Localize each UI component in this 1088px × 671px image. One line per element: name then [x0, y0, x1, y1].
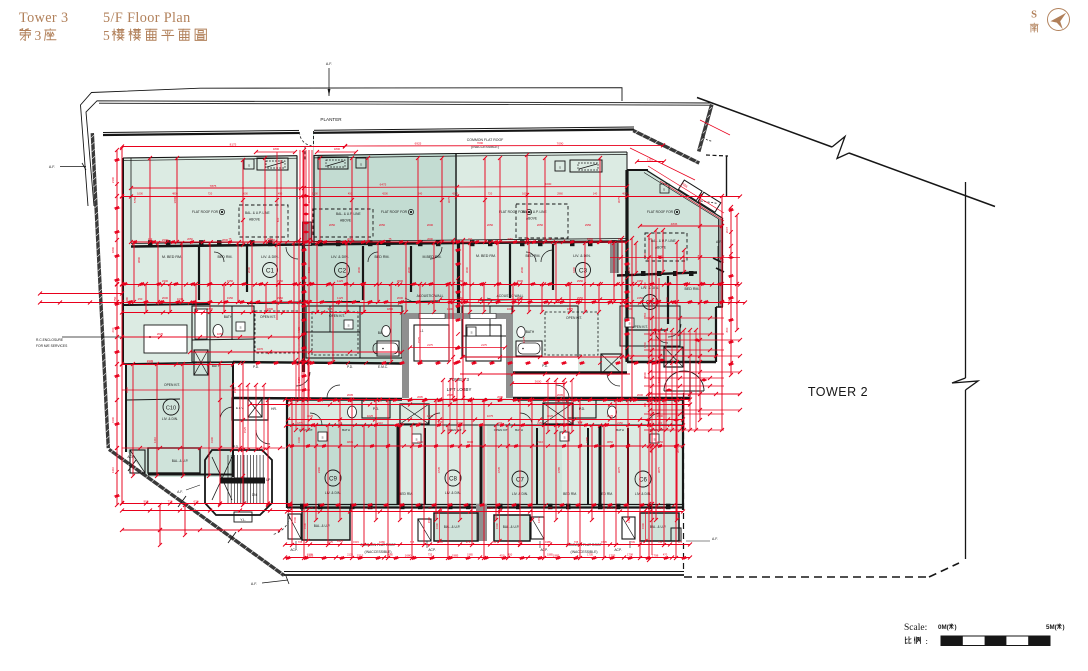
svg-text:3850: 3850: [607, 440, 614, 444]
svg-text:1875: 1875: [297, 421, 303, 425]
svg-text:2950: 2950: [577, 279, 584, 283]
svg-text:4100: 4100: [210, 436, 214, 443]
svg-text:5: 5: [103, 28, 110, 43]
svg-text:M. BED RM.: M. BED RM.: [476, 254, 496, 258]
svg-text:1675: 1675: [567, 307, 574, 311]
svg-text:1500: 1500: [641, 523, 645, 529]
svg-text:BAL. & U.P. LINE: BAL. & U.P. LINE: [336, 212, 361, 216]
svg-text:2950: 2950: [587, 237, 593, 241]
svg-text:2050: 2050: [507, 237, 513, 241]
svg-text:4400: 4400: [572, 266, 576, 273]
svg-text:1600: 1600: [312, 192, 318, 196]
svg-text:7090: 7090: [477, 141, 484, 145]
svg-text:600: 600: [111, 327, 115, 332]
svg-text:BAL. & U.P.: BAL. & U.P.: [172, 459, 189, 463]
svg-text:4735: 4735: [437, 466, 441, 473]
svg-text:960: 960: [643, 402, 647, 407]
svg-text:720: 720: [488, 192, 493, 196]
svg-text:3800: 3800: [137, 256, 141, 263]
svg-text:FLAT ROOF FOR: FLAT ROOF FOR: [381, 210, 408, 214]
svg-text:1575: 1575: [417, 336, 421, 343]
svg-text:BATH: BATH: [526, 330, 535, 334]
svg-text:650: 650: [643, 252, 647, 257]
svg-text:COMMON FLAT ROOF: COMMON FLAT ROOF: [467, 138, 504, 142]
svg-text:3675: 3675: [617, 466, 621, 473]
svg-text:2960: 2960: [557, 192, 563, 196]
svg-text:COMMON FLAT ROOF: COMMON FLAT ROOF: [566, 543, 601, 547]
svg-text:1050: 1050: [457, 279, 464, 283]
svg-text:BED RM.: BED RM.: [685, 287, 700, 291]
svg-text:2800: 2800: [222, 238, 229, 242]
svg-text:550: 550: [643, 312, 647, 317]
svg-text:2300: 2300: [162, 279, 169, 283]
svg-text:2400: 2400: [317, 466, 321, 473]
svg-text:425: 425: [518, 540, 523, 544]
svg-text:S: S: [663, 188, 665, 192]
svg-text:2000: 2000: [520, 266, 524, 273]
svg-text:LIV. & DIN.: LIV. & DIN.: [573, 254, 591, 258]
svg-text:L1: L1: [420, 329, 424, 333]
svg-text:1680: 1680: [379, 540, 385, 544]
svg-text:1985: 1985: [452, 553, 459, 557]
svg-text:BED RM.: BED RM.: [399, 492, 413, 496]
svg-text:2100: 2100: [111, 176, 115, 183]
svg-text:4735: 4735: [497, 466, 501, 473]
svg-text:2007: 2007: [725, 226, 729, 233]
svg-text:2450: 2450: [637, 279, 644, 283]
svg-text:150: 150: [618, 237, 623, 241]
svg-text:735: 735: [410, 540, 415, 544]
svg-text:BATH: BATH: [515, 428, 523, 432]
svg-text:3075: 3075: [617, 196, 621, 203]
svg-text:5100: 5100: [307, 266, 311, 273]
svg-text:1500: 1500: [293, 516, 297, 523]
svg-text:3800: 3800: [173, 196, 177, 203]
svg-text:3675: 3675: [447, 196, 451, 203]
svg-text:2600: 2600: [517, 296, 524, 300]
svg-text:4785: 4785: [585, 436, 589, 443]
svg-text:1050: 1050: [457, 296, 464, 300]
svg-text:1125: 1125: [337, 279, 343, 283]
svg-text:2300: 2300: [162, 238, 169, 242]
svg-text:2150: 2150: [607, 506, 614, 510]
svg-text:2050: 2050: [487, 223, 494, 227]
svg-text:BAL. & U.P.: BAL. & U.P.: [444, 525, 461, 529]
svg-text:1200: 1200: [643, 342, 647, 348]
svg-text:995: 995: [143, 499, 148, 503]
svg-text:2550: 2550: [267, 237, 273, 241]
svg-text:1472: 1472: [627, 516, 631, 523]
svg-text:450: 450: [508, 553, 513, 557]
svg-text:1125: 1125: [337, 296, 343, 300]
svg-text:2050: 2050: [379, 223, 386, 227]
svg-text:735: 735: [298, 540, 303, 544]
svg-text:1680: 1680: [387, 553, 393, 557]
svg-text:5M(: 5M(: [1046, 624, 1058, 631]
svg-text:1515: 1515: [353, 540, 359, 544]
svg-text:7875: 7875: [210, 184, 217, 188]
svg-text:4805: 4805: [172, 192, 178, 196]
svg-text:1985: 1985: [547, 553, 553, 557]
svg-text:P.D.: P.D.: [253, 365, 259, 369]
svg-text:735: 735: [167, 499, 172, 503]
svg-text:2695: 2695: [557, 393, 564, 397]
svg-text:1985: 1985: [545, 540, 551, 544]
svg-text:1025: 1025: [367, 414, 374, 418]
svg-text:ABOVE: ABOVE: [340, 219, 351, 223]
svg-text:3000: 3000: [357, 266, 361, 273]
svg-text:2450: 2450: [637, 296, 644, 300]
svg-text:1410: 1410: [153, 436, 157, 443]
svg-text:2125: 2125: [347, 553, 353, 557]
svg-text:1600: 1600: [507, 307, 514, 311]
svg-text:3500: 3500: [665, 296, 669, 303]
svg-text:800: 800: [725, 327, 729, 332]
svg-text:BED RM.: BED RM.: [218, 255, 233, 259]
svg-text:1500: 1500: [495, 523, 499, 529]
svg-text:7090: 7090: [557, 142, 564, 146]
svg-text:1075: 1075: [487, 414, 494, 418]
svg-text:2000: 2000: [407, 266, 411, 273]
svg-text:2110: 2110: [367, 506, 373, 510]
svg-text:HR.: HR.: [271, 407, 277, 411]
svg-text:ABOVE: ABOVE: [655, 246, 666, 250]
svg-text:150: 150: [138, 297, 143, 301]
svg-text:4100: 4100: [111, 416, 115, 423]
svg-text:6925: 6925: [415, 142, 422, 146]
svg-text:2600: 2600: [162, 296, 169, 300]
svg-text:2150: 2150: [537, 421, 543, 425]
svg-text:2125: 2125: [327, 540, 333, 544]
svg-text:ACP.: ACP.: [614, 548, 622, 552]
svg-text:3000: 3000: [465, 266, 469, 273]
svg-text:1800: 1800: [387, 307, 394, 311]
svg-text:FOR M/E SERVICES: FOR M/E SERVICES: [36, 344, 68, 348]
svg-text:1575: 1575: [522, 336, 526, 343]
svg-text:1680: 1680: [405, 553, 412, 557]
svg-text:50: 50: [428, 506, 432, 510]
svg-text:450: 450: [492, 540, 497, 544]
svg-text:4835: 4835: [347, 440, 354, 444]
svg-text:(INACCESSIBLE): (INACCESSIBLE): [571, 550, 598, 554]
svg-text:2600: 2600: [397, 296, 404, 300]
svg-text:BED RM.: BED RM.: [563, 492, 577, 496]
svg-text:BATH: BATH: [342, 428, 350, 432]
svg-text:BAL. & U.P. LINE: BAL. & U.P. LINE: [522, 210, 547, 214]
svg-text:A.F.: A.F.: [49, 165, 55, 169]
svg-text:OPEN KIT.: OPEN KIT.: [632, 325, 648, 329]
svg-text:2110: 2110: [417, 440, 423, 444]
svg-text:PLANTER: PLANTER: [320, 117, 342, 122]
svg-text:1800: 1800: [111, 246, 115, 253]
svg-text:1709: 1709: [629, 540, 635, 544]
svg-text:C10: C10: [166, 406, 176, 412]
svg-text:BED RM.: BED RM.: [375, 255, 390, 259]
svg-text:BAL. & U.P. LINE: BAL. & U.P. LINE: [245, 211, 270, 215]
svg-text:150: 150: [468, 237, 473, 241]
svg-text:FLAT ROOF FOR: FLAT ROOF FOR: [499, 210, 526, 214]
svg-text:9000: 9000: [467, 440, 474, 444]
svg-text:2625: 2625: [157, 332, 164, 336]
svg-text:1575: 1575: [197, 360, 204, 364]
svg-text:1525: 1525: [243, 426, 247, 433]
svg-text:S: S: [347, 324, 349, 328]
svg-text:1800: 1800: [273, 147, 280, 151]
svg-text:720: 720: [208, 192, 213, 196]
svg-text:2950: 2950: [577, 296, 584, 300]
svg-text::: :: [926, 636, 928, 646]
svg-text:A.F.: A.F.: [177, 490, 183, 494]
svg-text:2000: 2000: [427, 237, 433, 241]
svg-text:BATH: BATH: [224, 315, 233, 319]
svg-text:): ): [955, 624, 957, 631]
svg-text:): ): [1063, 624, 1065, 631]
svg-text:1600: 1600: [522, 192, 528, 196]
svg-text:OPEN KIT.: OPEN KIT.: [260, 315, 276, 319]
svg-text:P.D.: P.D.: [347, 365, 353, 369]
svg-text:ABOVE: ABOVE: [249, 218, 260, 222]
svg-text:ABOVE: ABOVE: [526, 217, 537, 221]
svg-text:1500: 1500: [303, 523, 307, 529]
svg-text:1025: 1025: [427, 414, 434, 418]
svg-text:2605: 2605: [347, 393, 354, 397]
svg-text:1705: 1705: [587, 553, 593, 557]
svg-text:735: 735: [428, 553, 433, 557]
svg-text:1800: 1800: [334, 147, 341, 151]
svg-text:735: 735: [658, 540, 663, 544]
svg-text:4425: 4425: [297, 326, 301, 333]
svg-text:2695: 2695: [417, 395, 423, 399]
svg-text:3875: 3875: [676, 446, 680, 453]
svg-text:3600: 3600: [535, 379, 542, 383]
svg-text:1050: 1050: [217, 332, 224, 336]
svg-text:S: S: [248, 164, 250, 168]
svg-text:150: 150: [548, 506, 553, 510]
svg-text:S: S: [559, 166, 561, 170]
svg-text:0M(: 0M(: [938, 624, 950, 631]
svg-text:2050: 2050: [329, 223, 336, 227]
svg-text:490: 490: [278, 192, 283, 196]
svg-text:1600: 1600: [242, 192, 248, 196]
svg-text:1950: 1950: [227, 296, 234, 300]
svg-text:400: 400: [658, 421, 663, 425]
svg-text:2000: 2000: [643, 282, 647, 288]
svg-text:BED RM.: BED RM.: [599, 492, 613, 496]
svg-text:TOWER 2: TOWER 2: [808, 385, 868, 399]
svg-text:LIV. & DIN.: LIV. & DIN.: [331, 255, 349, 259]
svg-text:3470: 3470: [257, 347, 264, 351]
svg-text:125: 125: [578, 421, 583, 425]
svg-text:8175: 8175: [230, 142, 237, 146]
svg-text:R.C.ENCLOSURE: R.C.ENCLOSURE: [36, 338, 64, 342]
svg-text:2950: 2950: [277, 296, 284, 300]
svg-text:475: 475: [466, 540, 471, 544]
svg-text:S: S: [321, 436, 323, 440]
svg-text:4100: 4100: [297, 436, 301, 443]
svg-text:125: 125: [338, 421, 343, 425]
svg-text:2050: 2050: [537, 223, 544, 227]
svg-text:C9: C9: [329, 476, 337, 483]
svg-text:1800: 1800: [267, 307, 274, 311]
svg-text:470: 470: [663, 553, 668, 557]
svg-text:2000: 2000: [427, 223, 434, 227]
svg-text:1950: 1950: [227, 279, 234, 283]
svg-text:ACP.: ACP.: [428, 548, 436, 552]
svg-text:C8: C8: [449, 476, 457, 483]
svg-text:2110: 2110: [487, 506, 493, 510]
svg-text:1800: 1800: [447, 307, 454, 311]
svg-text:A.F.: A.F.: [716, 240, 722, 244]
svg-text:150: 150: [498, 421, 503, 425]
svg-text:S: S: [470, 331, 472, 335]
svg-text:C3: C3: [579, 268, 588, 275]
svg-text:2450: 2450: [657, 440, 664, 444]
svg-text:2450: 2450: [627, 266, 631, 273]
svg-text:975: 975: [328, 307, 333, 311]
svg-text:M.BED RM.: M.BED RM.: [423, 255, 442, 259]
svg-text:ACP.: ACP.: [290, 548, 298, 552]
svg-text:2175: 2175: [481, 343, 487, 347]
svg-text:S: S: [563, 436, 565, 440]
svg-text:150: 150: [148, 237, 153, 241]
svg-text:4200: 4200: [452, 192, 458, 196]
svg-text:1000: 1000: [137, 192, 143, 196]
svg-text:1985: 1985: [467, 553, 473, 557]
svg-text:S: S: [653, 438, 655, 442]
svg-text:1505: 1505: [601, 540, 607, 544]
svg-text:1505: 1505: [147, 359, 154, 363]
svg-text:BAL. & U.P.: BAL. & U.P.: [503, 525, 520, 529]
svg-text:5750: 5750: [133, 196, 137, 203]
svg-text:6000: 6000: [545, 182, 552, 186]
svg-text:1505: 1505: [307, 553, 313, 557]
svg-text:1472: 1472: [537, 516, 541, 523]
svg-text:4836: 4836: [671, 222, 678, 226]
svg-text:735: 735: [574, 540, 579, 544]
svg-text:780: 780: [628, 307, 633, 311]
svg-text:FLAT ROOF FOR: FLAT ROOF FOR: [192, 210, 219, 214]
svg-text:C2: C2: [338, 268, 347, 275]
svg-text:1500: 1500: [427, 516, 431, 523]
svg-text:2950: 2950: [585, 223, 592, 227]
svg-text:5/F Floor Plan: 5/F Floor Plan: [103, 10, 191, 26]
svg-text:3875: 3875: [657, 466, 661, 473]
svg-text:2150: 2150: [657, 506, 664, 510]
svg-text:2050: 2050: [187, 237, 193, 241]
svg-text:BATH: BATH: [616, 428, 624, 432]
svg-text:2600: 2600: [397, 279, 404, 283]
svg-text:2000: 2000: [247, 266, 251, 273]
svg-text:6125: 6125: [337, 539, 344, 543]
svg-text:240: 240: [418, 192, 423, 196]
svg-text:2050: 2050: [347, 237, 353, 241]
svg-text:1150: 1150: [297, 377, 301, 383]
svg-text:2110: 2110: [377, 421, 383, 425]
svg-text:A.F.: A.F.: [712, 537, 718, 541]
svg-text:Tower 3: Tower 3: [19, 10, 68, 26]
svg-text:ACP.: ACP.: [127, 455, 135, 459]
svg-text:2950: 2950: [277, 279, 284, 283]
svg-text:4000: 4000: [622, 192, 628, 196]
svg-text:1025: 1025: [607, 414, 614, 418]
svg-text:OPEN KIT.: OPEN KIT.: [566, 316, 582, 320]
svg-text:2150: 2150: [617, 421, 623, 425]
svg-text:Y.L.: Y.L.: [240, 518, 246, 522]
svg-text:DN: DN: [252, 493, 257, 497]
svg-text:1410: 1410: [111, 466, 115, 473]
svg-text:TOWER 3: TOWER 3: [449, 377, 469, 382]
svg-text:2090: 2090: [643, 372, 647, 378]
svg-text:2110: 2110: [457, 421, 463, 425]
svg-text:2110: 2110: [537, 440, 543, 444]
svg-text:2600: 2600: [637, 393, 644, 397]
svg-text:1708: 1708: [652, 553, 659, 557]
svg-text:S: S: [1031, 10, 1037, 21]
svg-text:S: S: [360, 163, 362, 167]
svg-text:M. BED RM.: M. BED RM.: [162, 255, 182, 259]
svg-text:LIV. & DIN.: LIV. & DIN.: [261, 255, 279, 259]
svg-text:1500: 1500: [435, 523, 439, 529]
svg-text:1600: 1600: [207, 307, 214, 311]
svg-text:140: 140: [593, 192, 598, 196]
svg-text:630: 630: [193, 499, 198, 503]
svg-text:LIV. & DIN.: LIV. & DIN.: [162, 417, 178, 421]
svg-text:C1: C1: [266, 268, 275, 275]
svg-text:6475: 6475: [380, 183, 387, 187]
svg-text:4200: 4200: [382, 192, 388, 196]
svg-text:OPEN KIT.: OPEN KIT.: [329, 314, 345, 318]
svg-text:2695: 2695: [497, 395, 503, 399]
svg-text:S: S: [628, 322, 630, 326]
svg-text:610: 610: [276, 217, 280, 222]
svg-text:ACOUSTIC WALL: ACOUSTIC WALL: [417, 294, 444, 298]
svg-text:LIV. & DIN.: LIV. & DIN.: [325, 491, 341, 495]
svg-text:1000: 1000: [177, 297, 184, 301]
svg-text:5750: 5750: [113, 296, 117, 303]
svg-text:LIV. & DIN.: LIV. & DIN.: [445, 491, 461, 495]
svg-text:A.F.: A.F.: [251, 582, 257, 586]
svg-text:BED RM.: BED RM.: [526, 254, 541, 258]
svg-text:Scale:: Scale:: [904, 623, 927, 633]
svg-text:FLAT ROOF FOR: FLAT ROOF FOR: [647, 210, 674, 214]
svg-text:2175: 2175: [427, 343, 433, 347]
svg-text:A.F.: A.F.: [326, 62, 332, 66]
svg-text:3: 3: [35, 28, 42, 43]
svg-text:1708: 1708: [627, 553, 633, 557]
svg-text:125: 125: [678, 540, 683, 544]
svg-text:S: S: [239, 326, 241, 330]
svg-text:OPEN KIT.: OPEN KIT.: [164, 383, 180, 387]
svg-text:E.M.C.: E.M.C.: [378, 365, 388, 369]
svg-text:450: 450: [348, 192, 353, 196]
svg-text:4785: 4785: [557, 466, 561, 473]
